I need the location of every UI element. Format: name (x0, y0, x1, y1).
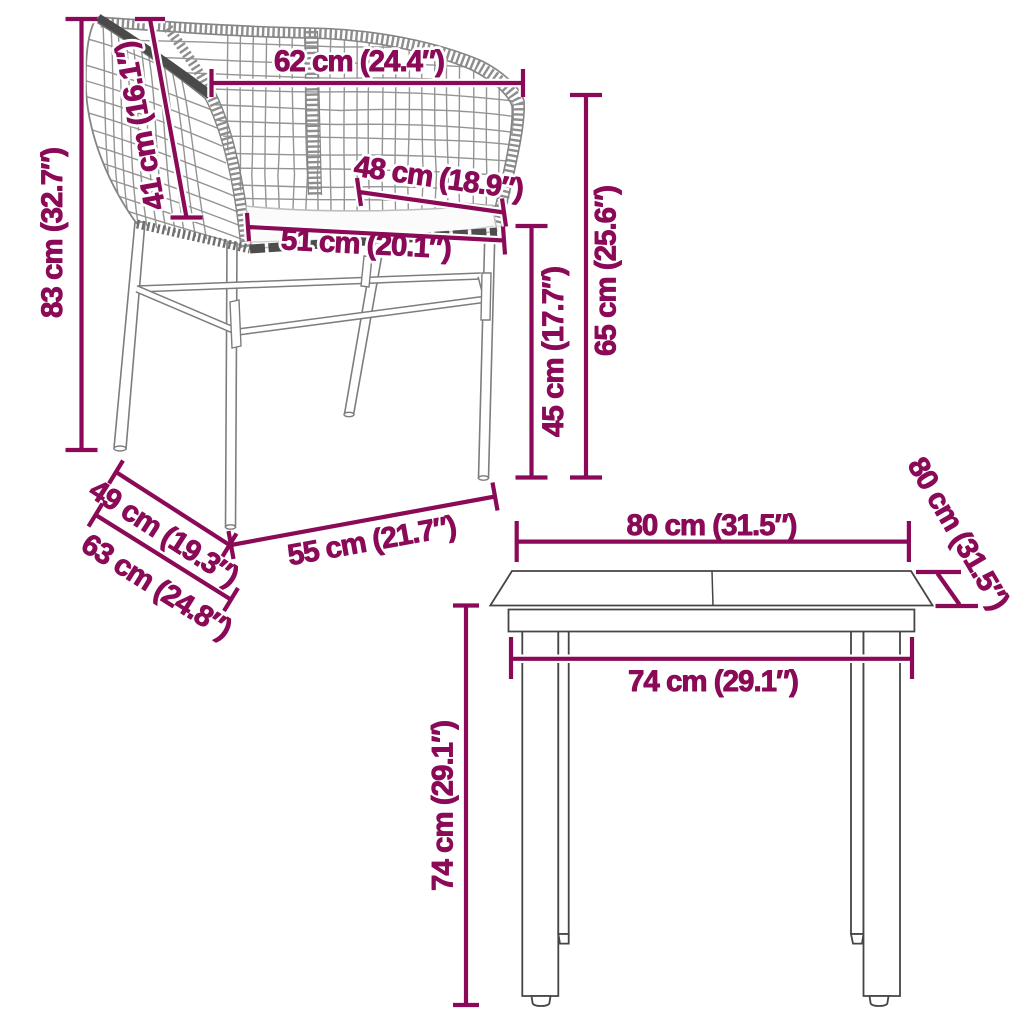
svg-text:65 cm (25.6″): 65 cm (25.6″) (590, 186, 623, 356)
svg-text:80 cm (31.5″): 80 cm (31.5″) (626, 509, 796, 542)
svg-text:74 cm (29.1″): 74 cm (29.1″) (427, 721, 460, 891)
svg-text:83 cm (32.7″): 83 cm (32.7″) (36, 148, 69, 318)
svg-text:62 cm (24.4″): 62 cm (24.4″) (274, 45, 444, 78)
svg-text:45 cm (17.7″): 45 cm (17.7″) (537, 267, 570, 437)
svg-text:74 cm (29.1″): 74 cm (29.1″) (628, 665, 798, 698)
